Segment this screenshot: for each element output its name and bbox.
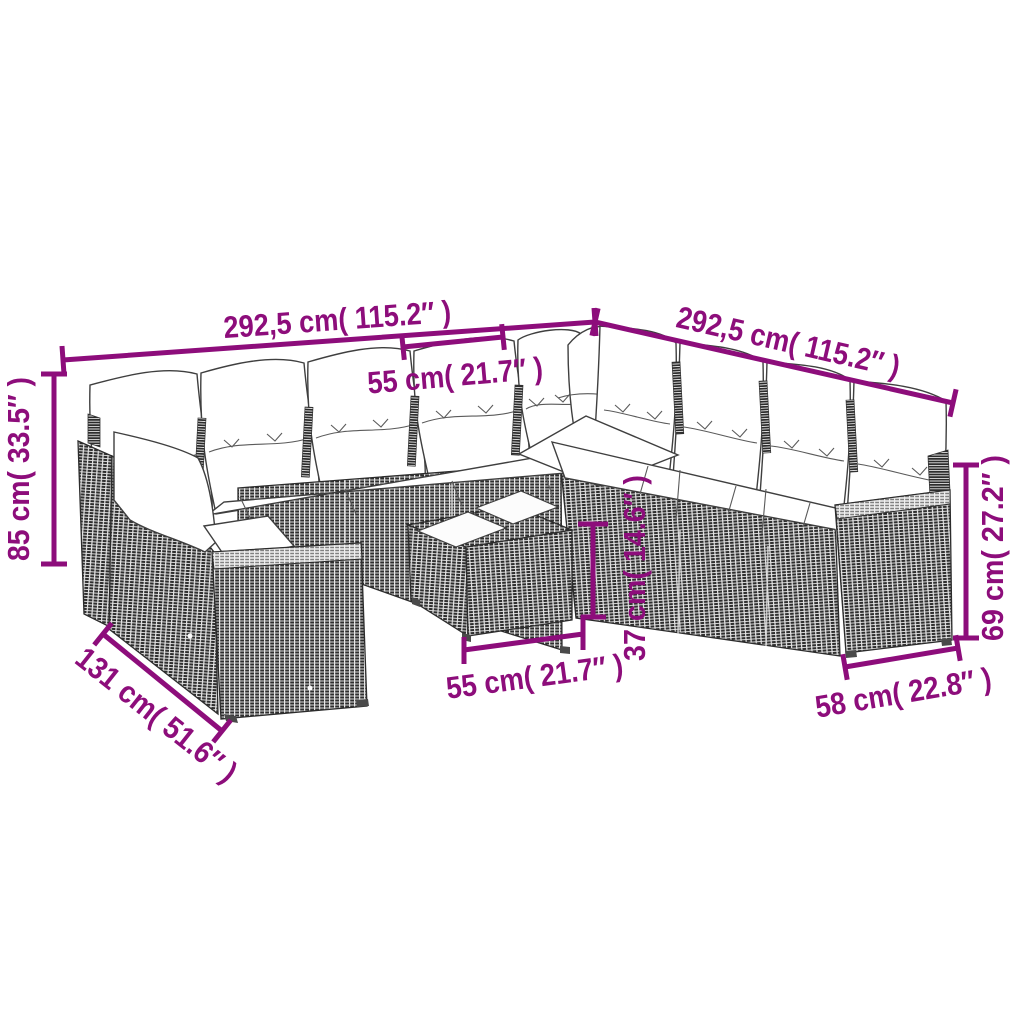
svg-text:69 cm( 27.2″ ): 69 cm( 27.2″ )	[975, 455, 1010, 641]
svg-text:85 cm( 33.5″ ): 85 cm( 33.5″ )	[1, 377, 36, 561]
svg-text:37 cm( 14.6″ ): 37 cm( 14.6″ )	[617, 475, 652, 661]
